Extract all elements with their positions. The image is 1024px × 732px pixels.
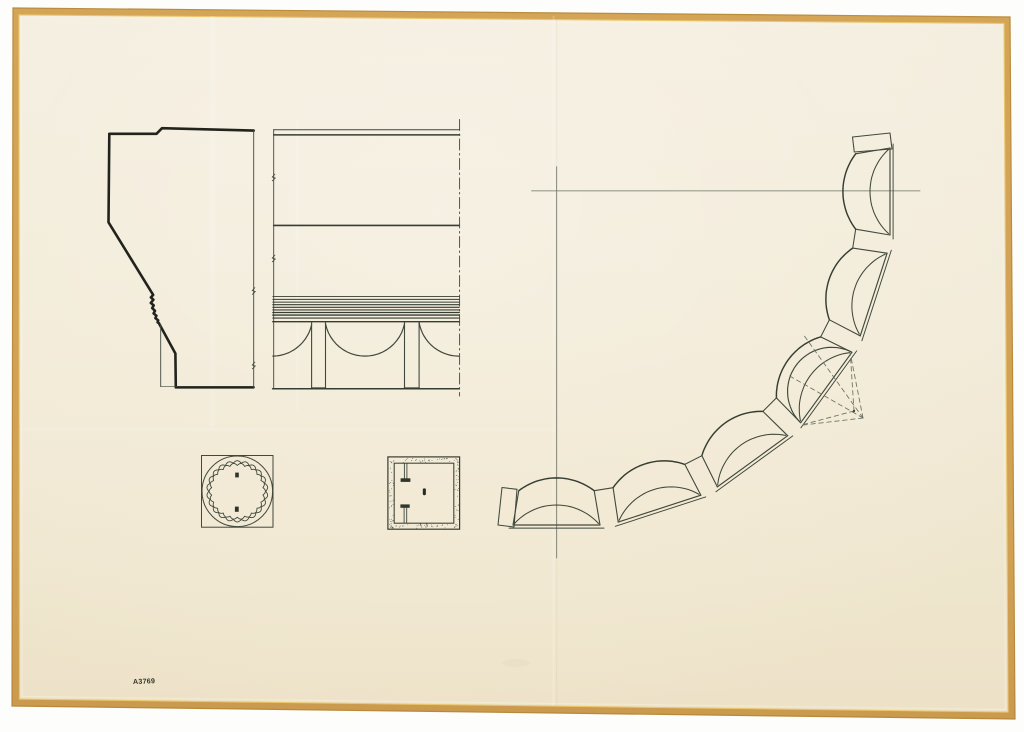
svg-text:A3769: A3769 xyxy=(133,676,155,686)
